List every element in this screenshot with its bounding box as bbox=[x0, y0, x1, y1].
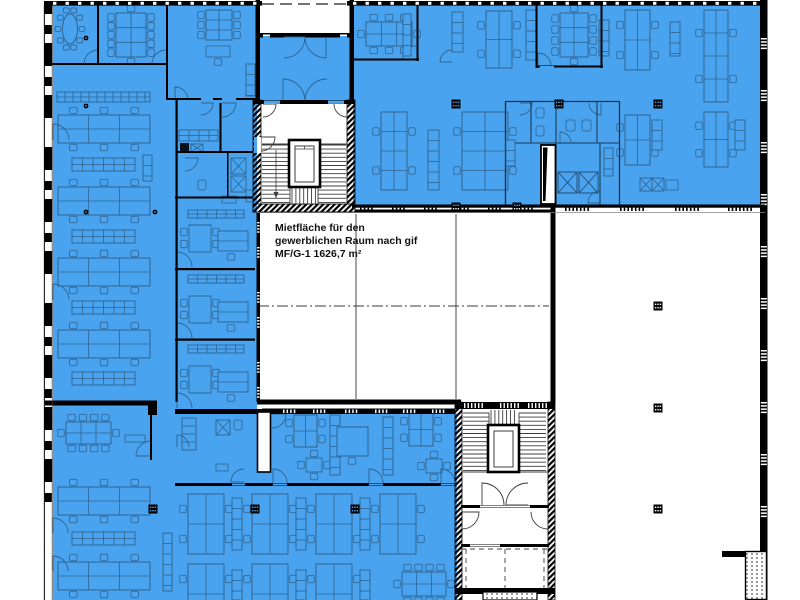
svg-text:MF/G-1 1626,7 m²: MF/G-1 1626,7 m² bbox=[275, 248, 362, 260]
svg-text:gewerblichen Raum nach gif: gewerblichen Raum nach gif bbox=[275, 235, 418, 247]
svg-text:Mietfläche für den: Mietfläche für den bbox=[275, 222, 365, 234]
